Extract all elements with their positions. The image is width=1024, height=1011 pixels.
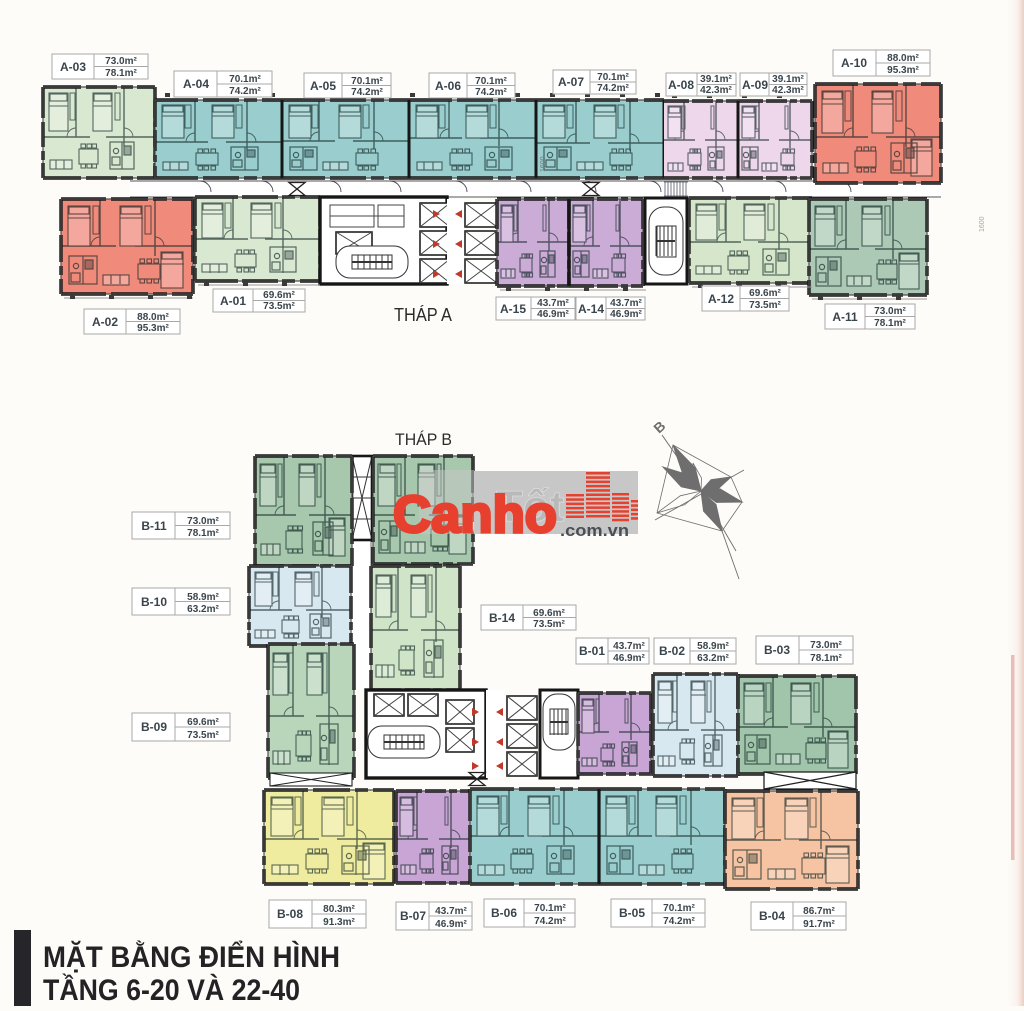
svg-text:78.1m²: 78.1m² — [874, 318, 906, 329]
svg-text:86.7m²: 86.7m² — [803, 906, 835, 917]
svg-text:A-15: A-15 — [500, 302, 526, 316]
svg-text:73.5m²: 73.5m² — [749, 300, 781, 311]
svg-text:.com.vn: .com.vn — [560, 521, 629, 540]
svg-text:A-07: A-07 — [558, 75, 584, 89]
svg-text:MẶT BẰNG ĐIỂN HÌNH: MẶT BẰNG ĐIỂN HÌNH — [43, 940, 340, 974]
svg-text:46.9m²: 46.9m² — [537, 309, 569, 320]
svg-text:69.6m²: 69.6m² — [749, 288, 781, 299]
svg-text:95.3m²: 95.3m² — [137, 323, 169, 334]
svg-text:39.1m²: 39.1m² — [700, 74, 732, 85]
svg-text:73.0m²: 73.0m² — [874, 306, 906, 317]
svg-text:73.0m²: 73.0m² — [187, 516, 219, 527]
svg-text:70.1m²: 70.1m² — [351, 76, 383, 87]
svg-text:A-05: A-05 — [310, 79, 336, 93]
svg-text:43.7m²: 43.7m² — [613, 641, 645, 652]
svg-text:69.6m²: 69.6m² — [187, 717, 219, 728]
svg-text:88.0m²: 88.0m² — [887, 53, 919, 64]
svg-text:B-03: B-03 — [764, 643, 790, 657]
svg-text:43.7m²: 43.7m² — [537, 298, 569, 309]
svg-text:A-08: A-08 — [668, 78, 694, 92]
svg-text:73.0m²: 73.0m² — [105, 56, 137, 67]
svg-text:46.9m²: 46.9m² — [613, 653, 645, 664]
svg-text:TẦNG 6-20 VÀ 22-40: TẦNG 6-20 VÀ 22-40 — [43, 973, 300, 1006]
svg-text:74.2m²: 74.2m² — [475, 87, 507, 98]
svg-text:88.0m²: 88.0m² — [137, 312, 169, 323]
svg-text:78.1m²: 78.1m² — [187, 528, 219, 539]
svg-text:74.2m²: 74.2m² — [534, 916, 566, 927]
svg-text:70.1m²: 70.1m² — [475, 76, 507, 87]
svg-text:46.9m²: 46.9m² — [435, 919, 467, 930]
svg-text:B-10: B-10 — [141, 595, 167, 609]
svg-text:73.5m²: 73.5m² — [187, 730, 219, 741]
svg-text:73.0m²: 73.0m² — [810, 640, 842, 651]
svg-text:A-01: A-01 — [220, 294, 246, 308]
svg-text:B-08: B-08 — [277, 907, 303, 921]
svg-text:70.1m²: 70.1m² — [534, 903, 566, 914]
svg-text:74.2m²: 74.2m² — [663, 916, 695, 927]
svg-text:74.2m²: 74.2m² — [351, 87, 383, 98]
svg-text:B-14: B-14 — [489, 611, 515, 625]
svg-text:THÁP B: THÁP B — [395, 430, 452, 449]
svg-text:B-02: B-02 — [659, 644, 685, 658]
svg-text:70.1m²: 70.1m² — [229, 74, 261, 85]
svg-text:73.5m²: 73.5m² — [533, 619, 565, 630]
svg-text:A-11: A-11 — [832, 310, 858, 324]
svg-text:91.3m²: 91.3m² — [323, 917, 355, 928]
svg-text:91.7m²: 91.7m² — [803, 919, 835, 930]
svg-text:A-04: A-04 — [183, 77, 209, 91]
svg-text:42.3m²: 42.3m² — [700, 85, 732, 96]
svg-text:46.9m²: 46.9m² — [610, 309, 642, 320]
svg-text:43.7m²: 43.7m² — [435, 906, 467, 917]
svg-text:70.1m²: 70.1m² — [663, 903, 695, 914]
svg-text:78.1m²: 78.1m² — [105, 68, 137, 79]
svg-text:B-05: B-05 — [619, 906, 645, 920]
svg-text:95.3m²: 95.3m² — [887, 65, 919, 76]
svg-text:73.5m²: 73.5m² — [263, 301, 295, 312]
svg-text:63.2m²: 63.2m² — [187, 604, 219, 615]
svg-text:58.9m²: 58.9m² — [187, 592, 219, 603]
svg-text:58.9m²: 58.9m² — [697, 641, 729, 652]
svg-text:70.1m²: 70.1m² — [597, 72, 629, 83]
svg-text:78.1m²: 78.1m² — [810, 653, 842, 664]
svg-text:B-09: B-09 — [141, 720, 167, 734]
svg-text:B-04: B-04 — [759, 909, 785, 923]
svg-text:74.2m²: 74.2m² — [229, 86, 261, 97]
svg-text:74.2m²: 74.2m² — [597, 83, 629, 94]
svg-text:63.2m²: 63.2m² — [697, 653, 729, 664]
svg-text:A-06: A-06 — [435, 79, 461, 93]
svg-text:39.1m²: 39.1m² — [772, 74, 804, 85]
svg-text:69.6m²: 69.6m² — [263, 290, 295, 301]
svg-text:A-14: A-14 — [578, 302, 604, 316]
svg-text:A-12: A-12 — [708, 292, 734, 306]
svg-text:A-09: A-09 — [742, 78, 768, 92]
svg-text:80.3m²: 80.3m² — [323, 904, 355, 915]
svg-text:A-10: A-10 — [841, 56, 867, 70]
svg-text:B-06: B-06 — [491, 906, 517, 920]
svg-text:Canho: Canho — [393, 486, 557, 544]
svg-text:B-11: B-11 — [141, 519, 167, 533]
svg-text:43.7m²: 43.7m² — [610, 298, 642, 309]
svg-text:THÁP A: THÁP A — [394, 305, 452, 325]
svg-text:A-03: A-03 — [60, 60, 86, 74]
svg-text:1600: 1600 — [979, 216, 986, 232]
svg-text:69.6m²: 69.6m² — [533, 608, 565, 619]
svg-text:42.3m²: 42.3m² — [772, 85, 804, 96]
svg-text:1600: 1600 — [540, 156, 547, 172]
svg-text:B-01: B-01 — [579, 644, 605, 658]
svg-text:B-07: B-07 — [400, 909, 426, 923]
svg-text:A-02: A-02 — [92, 315, 118, 329]
